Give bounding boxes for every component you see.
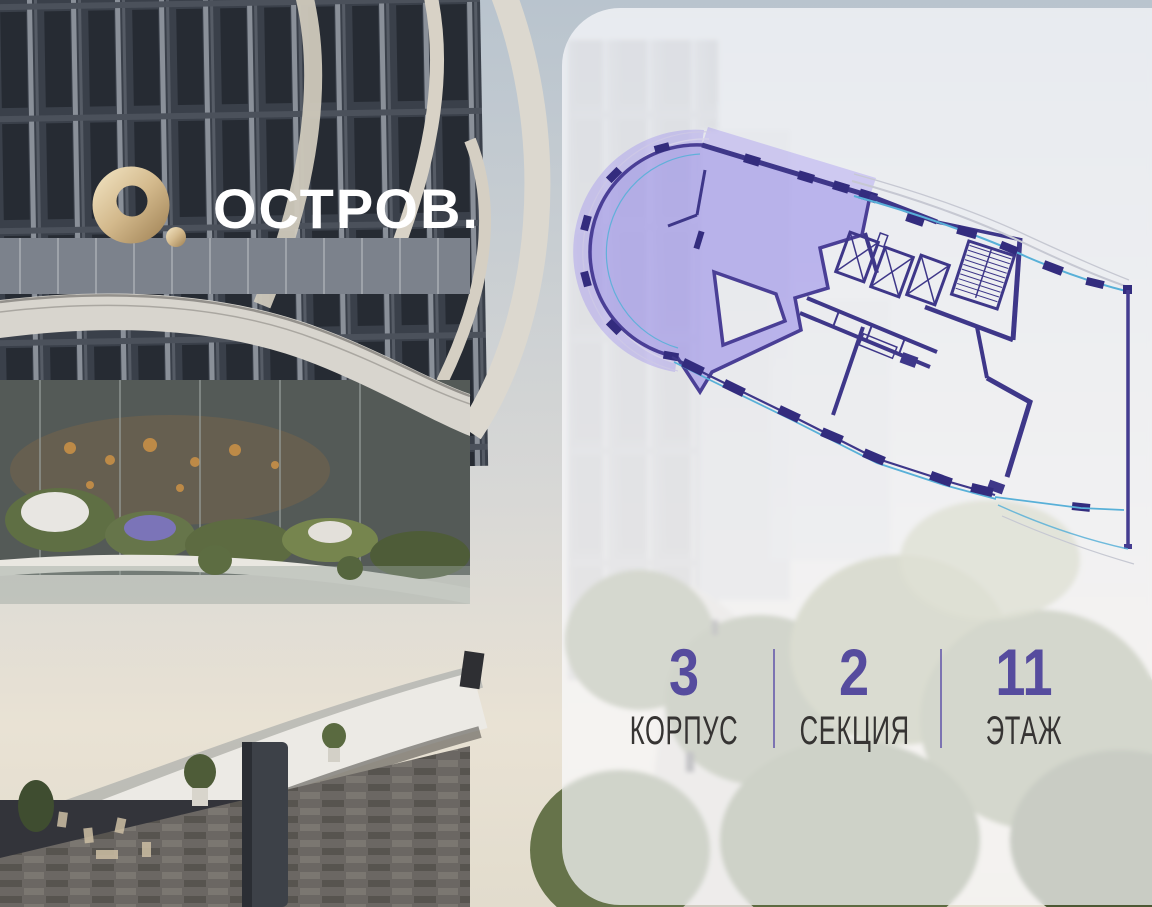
floor-plan	[562, 8, 1152, 905]
korpus-value: 3	[614, 638, 753, 707]
etazh-label: ЭТАЖ	[970, 711, 1079, 751]
stairs-icon	[952, 241, 1015, 309]
brand-logo: ОСТРОВ.	[88, 160, 508, 270]
sekcia-label: СЕКЦИЯ	[800, 711, 909, 751]
info-etazh: 11 ЭТАЖ	[939, 638, 1109, 751]
floor-plan-panel: 3 КОРПУС 2 СЕКЦИЯ 11 ЭТАЖ	[562, 8, 1152, 905]
info-sekcia: 2 СЕКЦИЯ	[769, 638, 939, 751]
real-estate-floorplan-screen: ОСТРОВ.	[0, 0, 1152, 907]
corridor	[800, 298, 937, 415]
sekcia-value: 2	[784, 638, 923, 707]
terrace-edge	[1124, 290, 1132, 549]
brand-mark-icon	[88, 160, 198, 260]
elevator-shaft-icon	[907, 255, 950, 305]
elevator-shaft-icon	[871, 247, 914, 297]
lower-room-walls	[987, 378, 1030, 494]
exterior-glazed-wall	[672, 357, 1134, 564]
etazh-value: 11	[954, 638, 1093, 707]
brand-name: ОСТРОВ.	[213, 181, 480, 237]
korpus-label: КОРПУС	[630, 711, 739, 751]
info-korpus: 3 КОРПУС	[599, 638, 769, 751]
